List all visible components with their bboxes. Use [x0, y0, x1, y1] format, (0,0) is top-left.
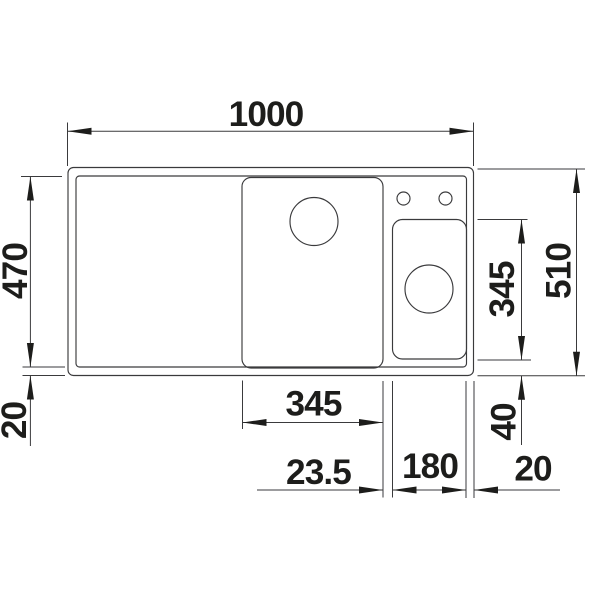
svg-text:20: 20: [514, 450, 552, 489]
svg-text:40: 40: [485, 403, 524, 441]
svg-text:20: 20: [0, 402, 34, 440]
svg-text:23.5: 23.5: [286, 453, 351, 492]
svg-text:345: 345: [483, 261, 522, 317]
svg-text:1000: 1000: [229, 95, 304, 134]
svg-text:180: 180: [402, 447, 458, 486]
svg-text:470: 470: [0, 243, 35, 299]
svg-text:345: 345: [285, 385, 341, 424]
svg-text:510: 510: [540, 243, 579, 299]
